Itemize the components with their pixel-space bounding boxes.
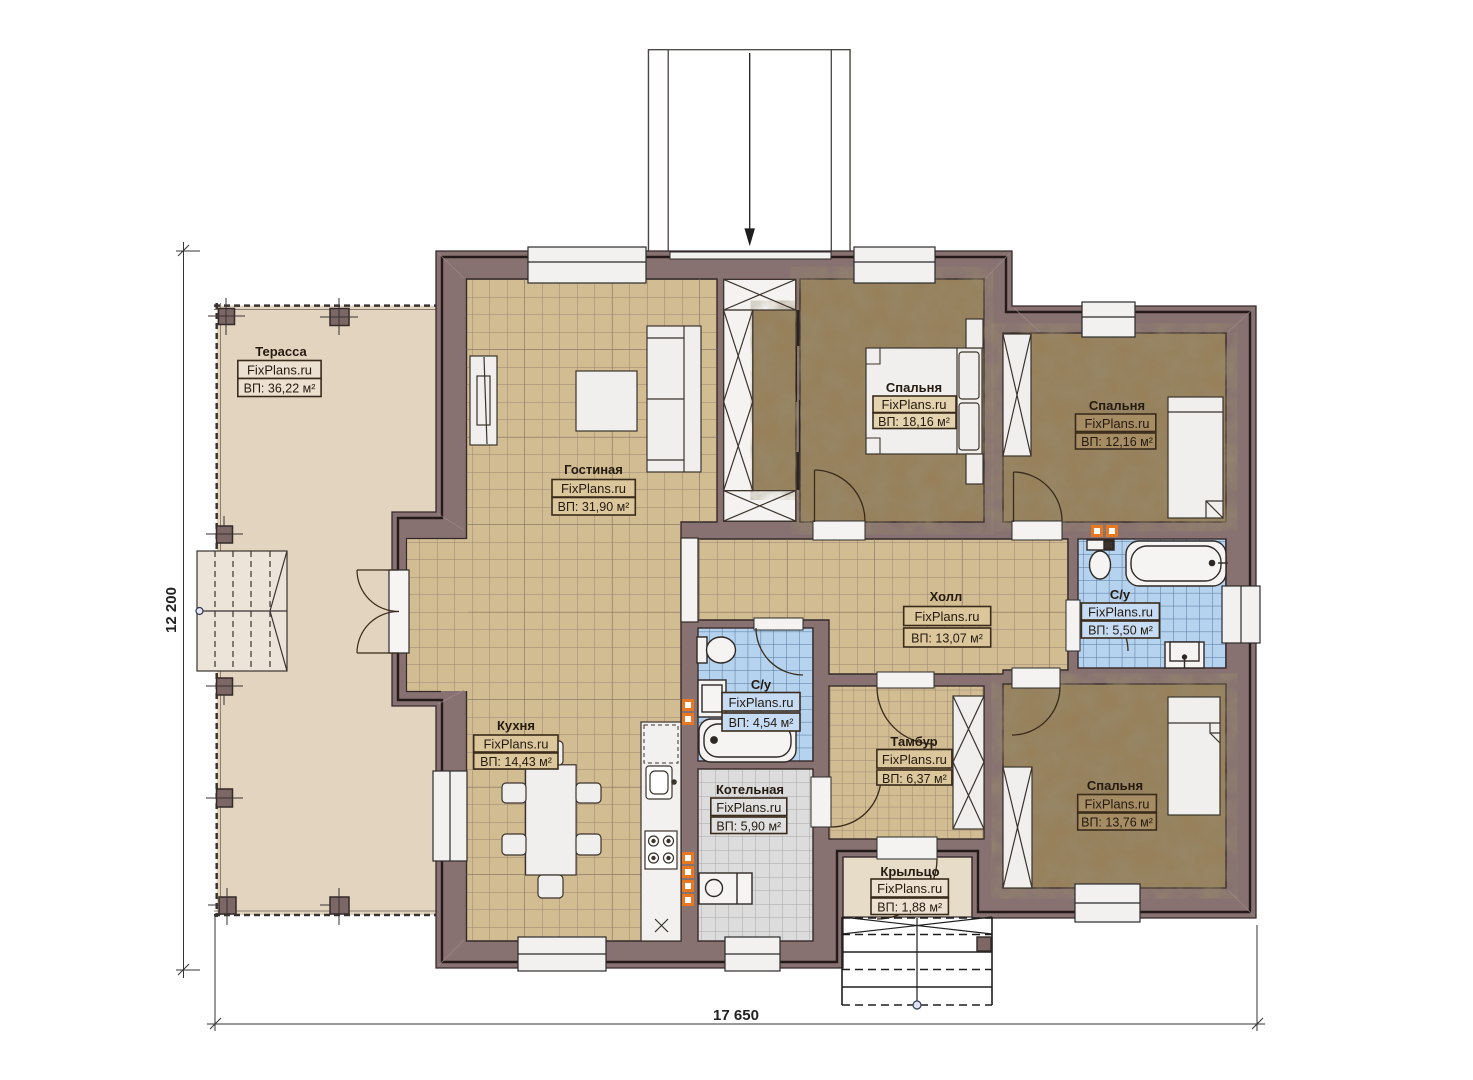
svg-text:ВП: 5,90 м²: ВП: 5,90 м² xyxy=(716,820,781,834)
svg-text:Крыльцо: Крыльцо xyxy=(880,864,939,879)
svg-text:ВП: 36,22 м²: ВП: 36,22 м² xyxy=(244,382,316,396)
svg-text:ВП: 5,50 м²: ВП: 5,50 м² xyxy=(1088,624,1153,638)
svg-text:FixPlans.ru: FixPlans.ru xyxy=(728,695,793,710)
svg-text:С/у: С/у xyxy=(1110,587,1131,602)
svg-text:FixPlans.ru: FixPlans.ru xyxy=(716,800,781,815)
svg-text:ВП: 4,54 м²: ВП: 4,54 м² xyxy=(729,716,794,730)
svg-text:FixPlans.ru: FixPlans.ru xyxy=(1088,605,1153,620)
svg-text:FixPlans.ru: FixPlans.ru xyxy=(483,737,548,752)
svg-text:ВП: 14,43 м²: ВП: 14,43 м² xyxy=(480,755,552,769)
svg-text:FixPlans.ru: FixPlans.ru xyxy=(247,363,312,378)
svg-text:ВП: 13,07 м²: ВП: 13,07 м² xyxy=(911,632,983,646)
svg-text:12 200: 12 200 xyxy=(163,587,180,633)
svg-text:FixPlans.ru: FixPlans.ru xyxy=(882,752,947,767)
svg-text:FixPlans.ru: FixPlans.ru xyxy=(561,481,626,496)
svg-text:FixPlans.ru: FixPlans.ru xyxy=(914,609,979,624)
svg-text:Терасса: Терасса xyxy=(255,344,307,359)
svg-text:Тамбур: Тамбур xyxy=(890,734,937,749)
svg-text:Гостиная: Гостиная xyxy=(564,462,623,477)
svg-text:Котельная: Котельная xyxy=(716,782,784,797)
svg-text:FixPlans.ru: FixPlans.ru xyxy=(877,881,942,896)
svg-text:ВП: 1,88 м²: ВП: 1,88 м² xyxy=(877,901,942,915)
svg-text:17 650: 17 650 xyxy=(713,1007,759,1024)
svg-text:FixPlans.ru: FixPlans.ru xyxy=(1084,797,1149,812)
svg-text:Спальня: Спальня xyxy=(886,380,942,395)
svg-text:FixPlans.ru: FixPlans.ru xyxy=(881,397,946,412)
svg-text:ВП: 18,16 м²: ВП: 18,16 м² xyxy=(878,415,950,429)
svg-text:С/у: С/у xyxy=(751,677,772,692)
svg-text:Кухня: Кухня xyxy=(497,718,535,733)
svg-text:ВП: 13,76 м²: ВП: 13,76 м² xyxy=(1081,816,1153,830)
svg-text:FixPlans.ru: FixPlans.ru xyxy=(1084,416,1149,431)
svg-text:ВП: 12,16 м²: ВП: 12,16 м² xyxy=(1081,435,1153,449)
svg-text:Спальня: Спальня xyxy=(1089,398,1145,413)
svg-text:Холл: Холл xyxy=(930,589,963,604)
svg-text:Спальня: Спальня xyxy=(1087,778,1143,793)
svg-text:ВП: 31,90 м²: ВП: 31,90 м² xyxy=(558,500,630,514)
svg-text:ВП: 6,37 м²: ВП: 6,37 м² xyxy=(882,772,947,786)
